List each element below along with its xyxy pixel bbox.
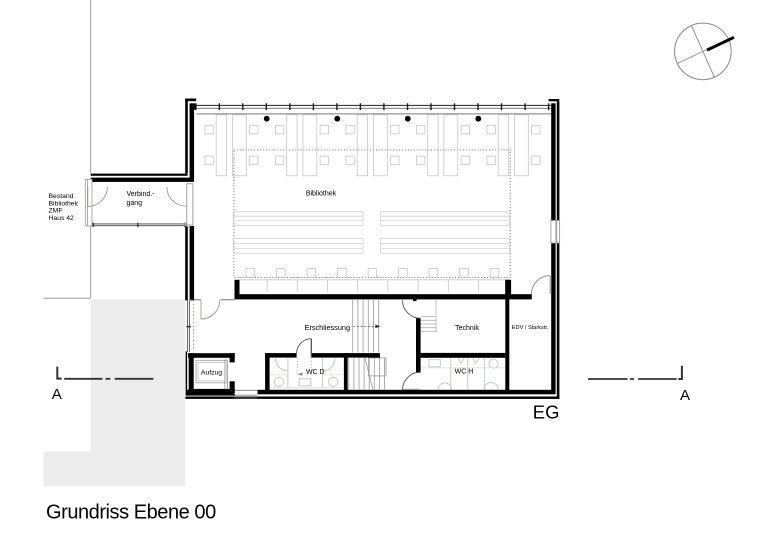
svg-text:Haus 42: Haus 42	[49, 215, 75, 222]
svg-text:ZMF: ZMF	[49, 208, 63, 215]
svg-text:Technik: Technik	[455, 325, 479, 332]
svg-text:EG: EG	[533, 401, 560, 422]
svg-text:A: A	[680, 387, 690, 404]
svg-text:WC H: WC H	[455, 369, 474, 376]
svg-text:WC D: WC D	[306, 369, 325, 376]
svg-text:Aufzug: Aufzug	[201, 369, 222, 376]
svg-text:Grundriss Ebene 00: Grundriss Ebene 00	[46, 502, 216, 524]
svg-text:A: A	[52, 386, 62, 403]
svg-text:Bibliothek: Bibliothek	[49, 200, 79, 207]
svg-text:Erschliessung: Erschliessung	[305, 323, 350, 332]
svg-text:Bibliothek: Bibliothek	[306, 190, 337, 197]
svg-text:gang: gang	[127, 200, 143, 207]
svg-text:Verbind.-: Verbind.-	[127, 191, 156, 198]
svg-text:Bestand: Bestand	[49, 193, 74, 200]
svg-text:EDV / Starkstr.: EDV / Starkstr.	[512, 325, 549, 331]
